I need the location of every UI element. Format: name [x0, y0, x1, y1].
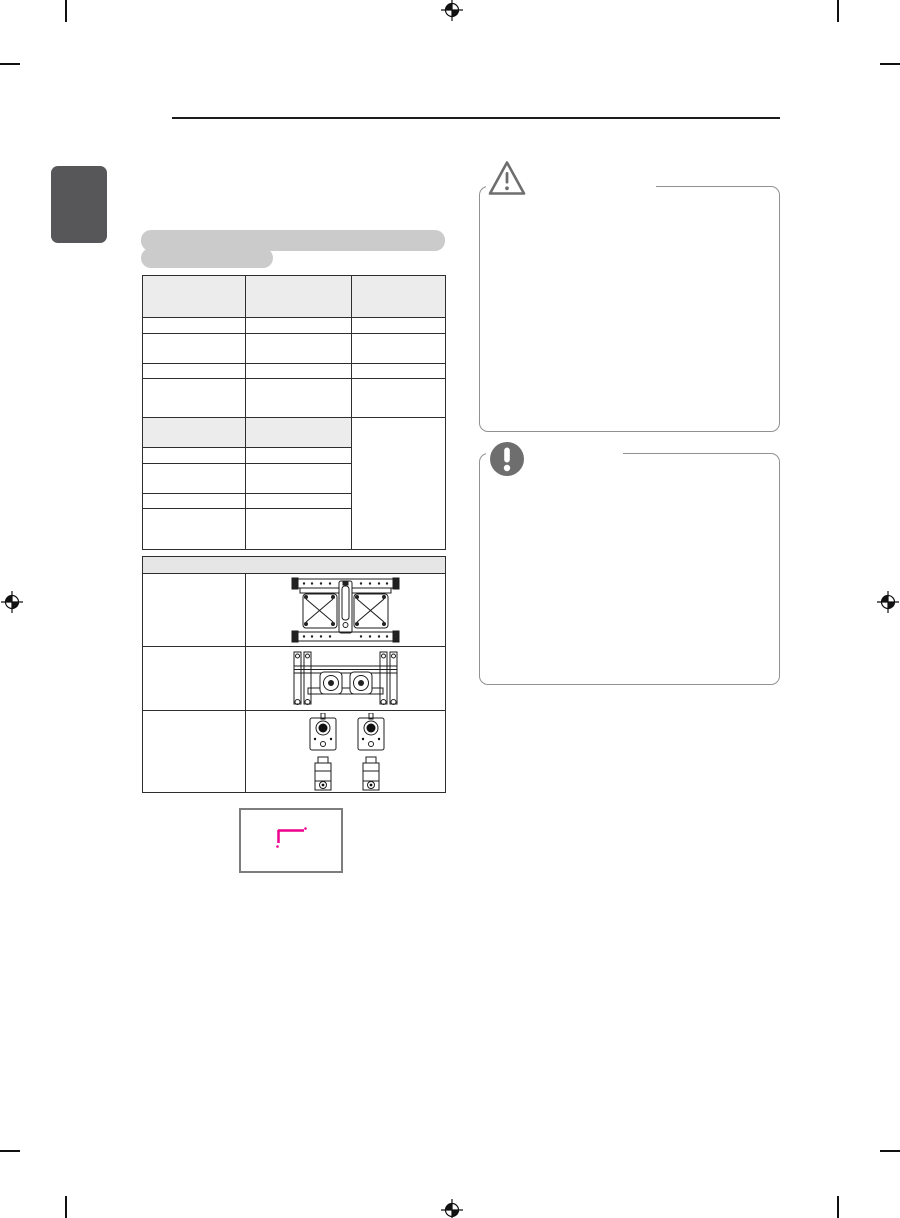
table-row [143, 574, 446, 647]
crop-tick-bottom-right [837, 1196, 839, 1218]
table-row [143, 334, 446, 364]
caution-panel [479, 186, 780, 432]
figure-cell [246, 574, 446, 647]
wall-mount-bracket-front-view [288, 650, 403, 708]
figure-table [142, 556, 446, 793]
figure-cell [246, 711, 446, 793]
table-row [143, 379, 446, 418]
section-heading-placeholder-line2 [141, 248, 273, 268]
spec-subheader-cell [143, 418, 246, 448]
registration-crosshair-icon [440, 0, 464, 22]
figure-label-cell [143, 711, 246, 793]
warning-triangle-icon [487, 159, 527, 198]
figure-table-header-cell [143, 557, 446, 574]
spec-merged-cell [352, 418, 446, 550]
table-row [143, 711, 446, 793]
figure-cell [246, 647, 446, 711]
figure-label-cell [143, 574, 246, 647]
manual-page [0, 0, 900, 1218]
page-header-rule [172, 117, 780, 119]
crop-tick-top-right [837, 0, 839, 22]
figure-label-cell [143, 647, 246, 711]
crop-tick-bottom-left [65, 1196, 67, 1218]
registration-crosshair-icon [440, 1198, 464, 1218]
table-row [143, 364, 446, 379]
mount-plates-and-spacers [288, 713, 403, 791]
exclamation-circle-icon [489, 441, 525, 477]
spec-table [142, 275, 446, 550]
spec-header-cell [246, 276, 352, 318]
corner-dimension-lines [241, 810, 341, 871]
registration-crosshair-icon [0, 590, 24, 614]
chapter-tab [51, 166, 107, 243]
edge-dash-bottom-left [0, 1150, 20, 1152]
note-panel [479, 453, 780, 685]
spec-header-cell [143, 276, 246, 318]
crop-tick-top-left [65, 0, 67, 22]
edge-dash-bottom-right [880, 1150, 900, 1152]
edge-dash-top-left [0, 63, 20, 65]
dimension-diagram-box [239, 808, 343, 873]
spec-table-header-row [143, 276, 446, 318]
wall-mount-bracket-top-view [288, 577, 403, 643]
table-row [143, 647, 446, 711]
table-row [143, 318, 446, 334]
edge-dash-top-right [880, 63, 900, 65]
spec-subheader-cell [246, 418, 352, 448]
spec-table-subheader-row [143, 418, 446, 448]
registration-crosshair-icon [876, 590, 900, 614]
spec-header-cell [352, 276, 446, 318]
figure-table-header-row [143, 557, 446, 574]
